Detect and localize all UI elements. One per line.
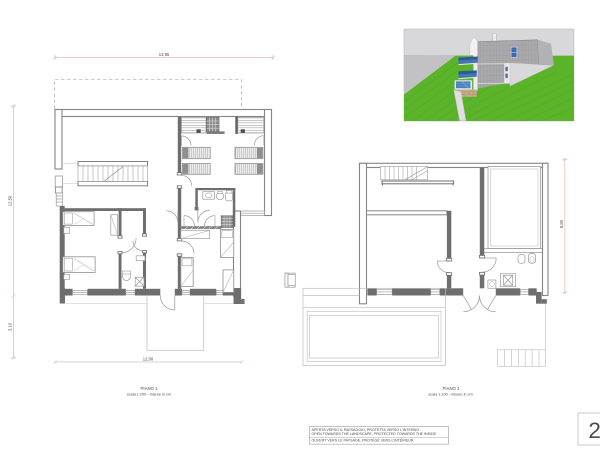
svg-text:OUVERT VERS LE PAYSAGE, PROTÉG: OUVERT VERS LE PAYSAGE, PROTÉGÉ VERS L’I… xyxy=(312,437,414,442)
svg-text:8,80: 8,80 xyxy=(559,219,564,228)
svg-text:13,95: 13,95 xyxy=(159,52,170,57)
svg-text:scala 1:100 - misure in cm: scala 1:100 - misure in cm xyxy=(127,393,171,397)
svg-text:12,00: 12,00 xyxy=(143,357,154,362)
svg-text:PIANO 1: PIANO 1 xyxy=(141,386,159,391)
svg-text:3,10: 3,10 xyxy=(8,322,13,331)
svg-text:2: 2 xyxy=(588,418,600,443)
svg-text:12,50: 12,50 xyxy=(8,195,13,206)
svg-text:PIANO 2: PIANO 2 xyxy=(443,386,461,391)
svg-text:APERTA VERSO IL PAESAGGIO, PRO: APERTA VERSO IL PAESAGGIO, PROTETTA VERS… xyxy=(312,428,420,432)
svg-text:OPEN TOWARDS THE LANDSCAPE, PR: OPEN TOWARDS THE LANDSCAPE, PROTECTED TO… xyxy=(312,432,437,436)
svg-text:scala 1:100 - misure in cm: scala 1:100 - misure in cm xyxy=(428,393,472,397)
